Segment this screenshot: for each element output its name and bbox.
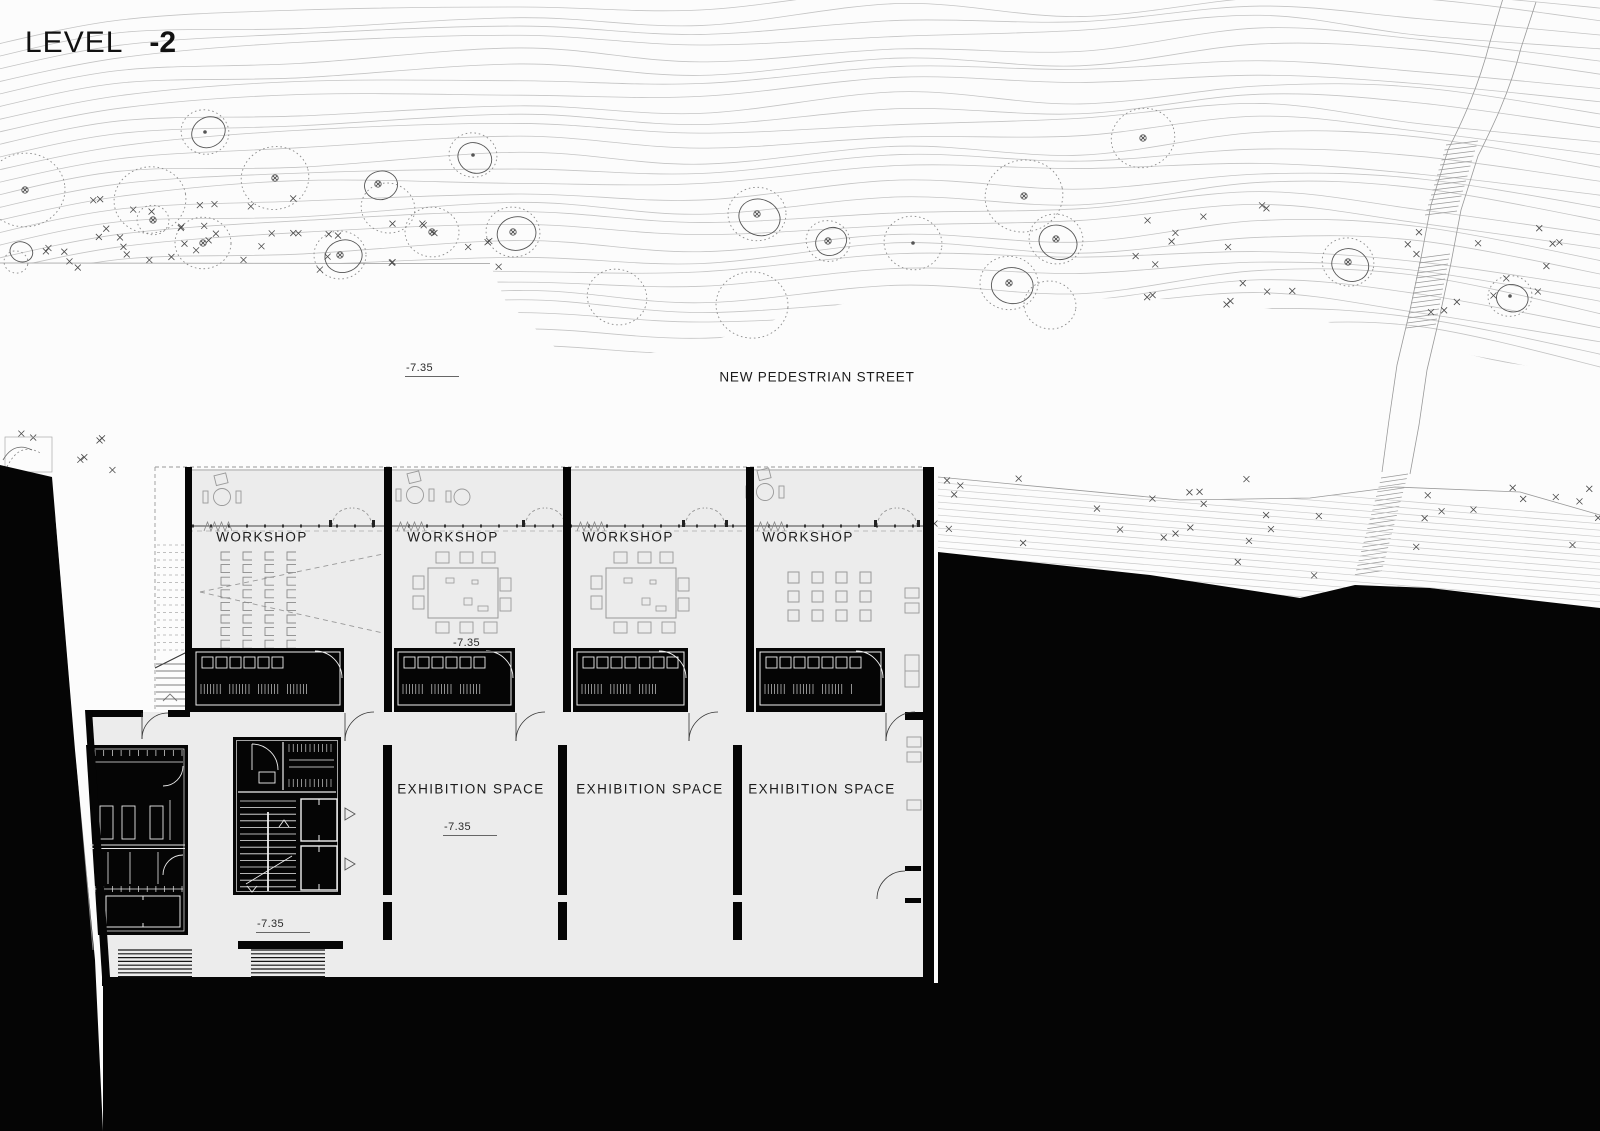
entry-ramp-dashed	[155, 545, 187, 706]
door-jamb	[725, 520, 728, 527]
contour-line	[0, 84, 1600, 149]
tree-icon	[1020, 277, 1080, 333]
contour-line	[0, 280, 1600, 351]
contour-line	[0, 293, 1600, 363]
storage-room	[573, 648, 688, 712]
tree-canopy-dotted	[109, 161, 191, 239]
wall	[383, 745, 392, 895]
step-rung	[1381, 474, 1408, 478]
step-rung	[1380, 479, 1407, 483]
stair-core	[233, 737, 355, 895]
contour-lines	[0, 0, 1600, 401]
contour-line	[0, 340, 1600, 401]
step-rung	[1411, 299, 1441, 303]
tree-center-mark	[911, 241, 915, 245]
storage-room	[192, 648, 344, 712]
door-jamb	[329, 520, 332, 527]
step-rung	[1374, 502, 1401, 506]
tree-center-mark	[203, 130, 207, 134]
step-rung	[1379, 483, 1406, 487]
tree-canopy	[734, 193, 786, 241]
wall	[168, 710, 190, 717]
tree-icon	[801, 215, 854, 266]
stair-line	[155, 652, 187, 668]
tree-canopy	[495, 214, 539, 254]
survey-patch	[3, 437, 52, 472]
step-rung	[1355, 571, 1382, 575]
building-floor	[88, 469, 923, 977]
tree-icon	[978, 153, 1069, 239]
wall	[923, 467, 934, 986]
tree-icon	[2, 249, 30, 276]
storage-walls	[756, 648, 885, 712]
step-rung	[1415, 279, 1445, 283]
storage-room	[756, 648, 885, 712]
contour-line	[0, 6, 1600, 73]
step-rung	[1412, 294, 1442, 298]
door-jamb	[874, 520, 877, 527]
step-rung	[1427, 206, 1459, 210]
wall	[563, 467, 571, 712]
step-rung	[1431, 191, 1463, 195]
survey-square	[5, 437, 52, 472]
wall	[383, 902, 392, 940]
earth-poche-left-wedge	[0, 465, 103, 1131]
door-jamb	[905, 866, 921, 871]
storage-walls	[192, 648, 344, 712]
step-rung	[1439, 166, 1471, 170]
contour-line	[0, 322, 1600, 388]
core-walls	[233, 737, 341, 895]
step-rung	[1369, 520, 1396, 524]
step-rung	[1418, 264, 1448, 268]
tree-canopy-dotted	[7, 449, 42, 467]
wall	[384, 467, 392, 712]
wall	[558, 745, 567, 895]
floor-plan-page: LEVEL-2 NEW PEDESTRIAN STREET -7.35 WORK…	[0, 0, 1600, 1131]
contour-line	[0, 103, 1600, 174]
tree-canopy	[3, 447, 32, 460]
site-plan-drawing	[0, 0, 1600, 1131]
tree-canopy-dotted	[355, 177, 421, 240]
step-rung	[1430, 196, 1462, 200]
step-rung	[1360, 552, 1387, 556]
tree-icon	[1024, 209, 1087, 269]
contour-line	[0, 0, 1600, 48]
step-rung	[1428, 201, 1460, 205]
wall	[905, 712, 933, 720]
wall	[87, 710, 143, 717]
step-rung	[1413, 289, 1443, 293]
storage-walls	[394, 648, 515, 712]
tree-icon	[979, 255, 1040, 311]
door-jamb	[917, 520, 920, 527]
step-rung	[1437, 171, 1469, 175]
contour-line	[0, 204, 1600, 274]
step-rung	[1409, 309, 1439, 313]
door-jamb	[905, 898, 921, 903]
door-jamb	[682, 520, 685, 527]
tree-canopy-dotted	[1020, 277, 1080, 333]
step-rung	[1420, 254, 1450, 258]
tree-icon	[1485, 272, 1535, 320]
direction-chevron	[163, 694, 177, 701]
wall	[733, 902, 742, 940]
door-jamb	[522, 520, 525, 527]
tree-icon	[234, 139, 316, 217]
step-rung	[1407, 319, 1437, 323]
step-rung	[1410, 304, 1440, 308]
wall	[558, 902, 567, 940]
door-jamb	[372, 520, 375, 527]
step-rung	[1419, 259, 1449, 263]
tree-icon	[355, 177, 421, 240]
storage-room	[394, 648, 515, 712]
contour-line	[0, 131, 1600, 199]
wall	[746, 467, 754, 712]
wall	[185, 467, 192, 712]
exhibition-band-floor	[88, 712, 923, 977]
step-rung	[1376, 492, 1403, 496]
contour-line	[0, 61, 1600, 124]
contour-line	[0, 43, 1600, 111]
contour-line	[0, 28, 1600, 99]
contour-line	[0, 181, 1600, 250]
tree-canopy	[453, 137, 497, 179]
tree-canopy-dotted	[714, 269, 790, 340]
street-edge-line	[0, 263, 490, 264]
path-edge	[1382, 0, 1504, 472]
tree-canopy-dotted	[2, 249, 30, 276]
contour-line	[0, 236, 1600, 300]
contour-line	[0, 163, 1600, 224]
tree-canopy	[1494, 282, 1530, 314]
step-rung	[1414, 284, 1444, 288]
step-rung	[1406, 324, 1436, 328]
tree-center-mark	[471, 153, 475, 157]
tree-icon	[109, 161, 191, 239]
contour-line	[0, 0, 1600, 61]
tree-icon	[1316, 232, 1379, 292]
wall	[733, 745, 742, 895]
contour-line	[0, 262, 1600, 325]
contour-line	[0, 149, 1600, 212]
step-rung	[1433, 186, 1465, 190]
tree-center-mark	[1508, 294, 1512, 298]
tree-icon	[714, 269, 790, 340]
contour-line	[0, 308, 1600, 375]
storage-walls	[573, 648, 688, 712]
wall	[238, 941, 343, 949]
